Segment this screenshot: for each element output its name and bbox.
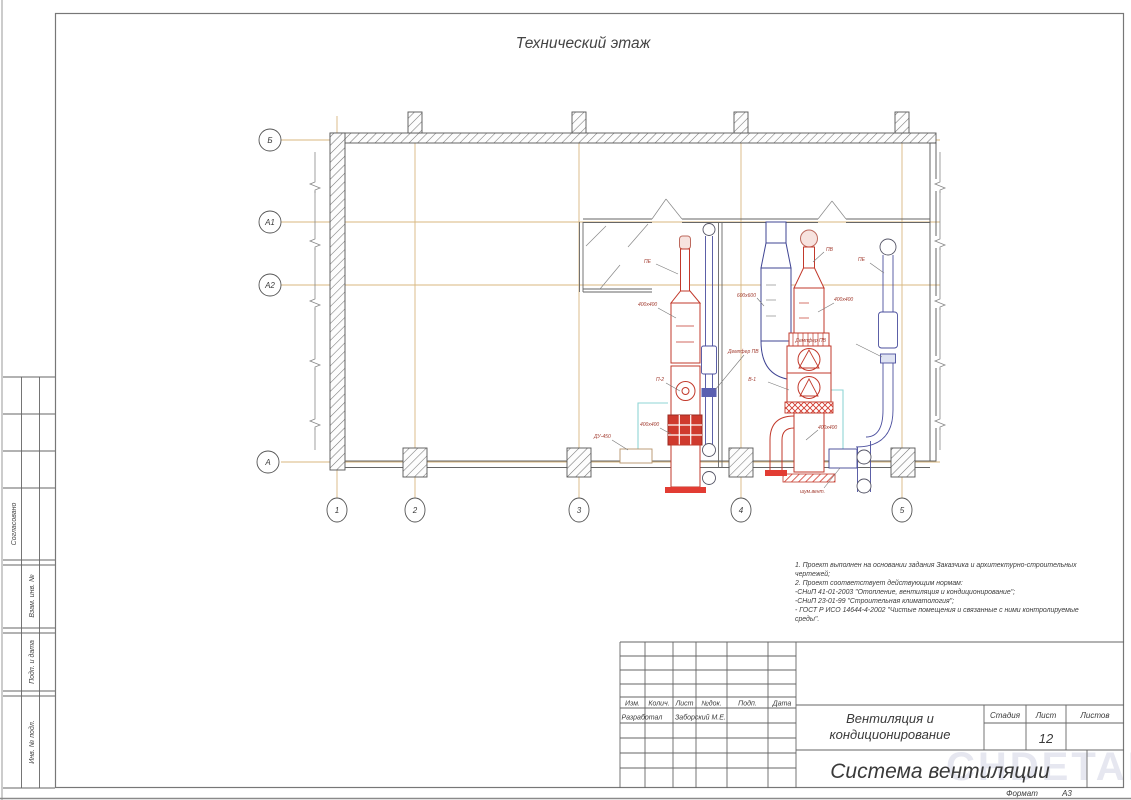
label-duct-size-1: 400х400 (638, 302, 657, 308)
axis-row-a1: А1 (264, 218, 275, 227)
stamp-project-line1: Вентиляция и (846, 711, 934, 726)
stamp-doc-title: Система вентиляции (830, 760, 1050, 783)
axis-col-3: 3 (577, 506, 582, 515)
sheet-frame (0, 0, 1131, 800)
label-damper-1: Демпфер ПВ (727, 349, 759, 355)
axis-grid (281, 116, 940, 500)
side-label-agreed: Согласовано (11, 503, 18, 546)
note-line-4: -СНиП 41-01-2003 "Отопление, вентиляция … (795, 588, 1015, 596)
label-damper-2: Демпфер ПВ (794, 338, 826, 344)
stamp-col-podp: Подп. (738, 700, 757, 708)
stamp-sheet-label: Лист (1035, 711, 1057, 720)
stamp-project-line2: кондиционирование (829, 727, 950, 742)
stamp-sheet-number: 12 (1039, 731, 1054, 746)
ventilation-drawing: CHDETAL Согласовано Взам. инв. № Подп. и… (0, 0, 1131, 800)
label-duct-size-3: 400х400 (834, 297, 853, 303)
stamp-stage-label: Стадия (990, 711, 1021, 720)
stamp-col-list: Лист (674, 701, 693, 708)
plan-title: Технический этаж (516, 35, 652, 52)
stamp-col-kol: Колич. (648, 701, 669, 708)
title-block: Изм. Колич. Лист №док. Подп. Дата Разраб… (620, 642, 1124, 798)
label-pe-left: ПЕ (644, 259, 652, 265)
axis-col-2: 2 (412, 506, 418, 515)
label-silencer: шум.вент. (800, 489, 825, 495)
stamp-sheets-label: Листов (1079, 711, 1109, 720)
format-label: Формат (1006, 789, 1038, 798)
label-p2: П-2 (656, 377, 664, 383)
format-value: А3 (1061, 789, 1072, 798)
axis-col-4: 4 (739, 506, 744, 515)
note-line-5: -СНиП 23-01-99 "Строительная климатологи… (795, 598, 954, 605)
note-line-7: среды". (795, 615, 819, 623)
side-label-inv: Инв. № подл. (28, 720, 36, 763)
label-duct-size-2: 400х400 (640, 422, 659, 428)
left-side-strip: Согласовано Взам. инв. № Подп. и дата Ин… (3, 377, 55, 788)
label-pe-right: ПЕ (858, 257, 866, 263)
stamp-role: Разработал (622, 714, 663, 722)
axis-row-a2: А2 (264, 281, 275, 290)
stamp-col-doc: №док. (701, 700, 722, 708)
side-label-podp: Подп. и дата (28, 640, 36, 684)
axis-col-1: 1 (335, 506, 339, 515)
supply-unit-left (620, 236, 706, 493)
notes-block: 1. Проект выполнен на основании задания … (794, 561, 1079, 623)
stamp-name: Заборский М.Е. (675, 714, 726, 722)
partitions (580, 199, 931, 467)
stamp-col-izm: Изм. (625, 701, 640, 708)
label-du450: ДУ-450 (593, 434, 611, 440)
note-line-3: 2. Проект соответствует действующим норм… (794, 579, 963, 587)
walls (330, 112, 936, 477)
side-label-vzam: Взам. инв. № (29, 574, 36, 618)
label-pv: ПВ (826, 247, 834, 253)
riser-duct (702, 224, 717, 485)
label-v1: В-1 (748, 377, 756, 383)
axis-row-b: Б (267, 136, 272, 145)
note-line-1: 1. Проект выполнен на основании задания … (795, 561, 1077, 569)
axis-col-5: 5 (900, 506, 905, 515)
stamp-col-data: Дата (772, 701, 792, 708)
note-line-2: чертежей; (795, 570, 830, 578)
label-duct-size-4: 600х600 (737, 293, 756, 299)
label-duct-size-5: 400х400 (818, 425, 837, 431)
drawing-sheet: CHDETAL Согласовано Взам. инв. № Подп. и… (0, 0, 1131, 800)
note-line-6: - ГОСТ Р ИСО 14644-4-2002 "Чистые помеще… (795, 607, 1079, 614)
axis-row-a: А (264, 458, 270, 467)
